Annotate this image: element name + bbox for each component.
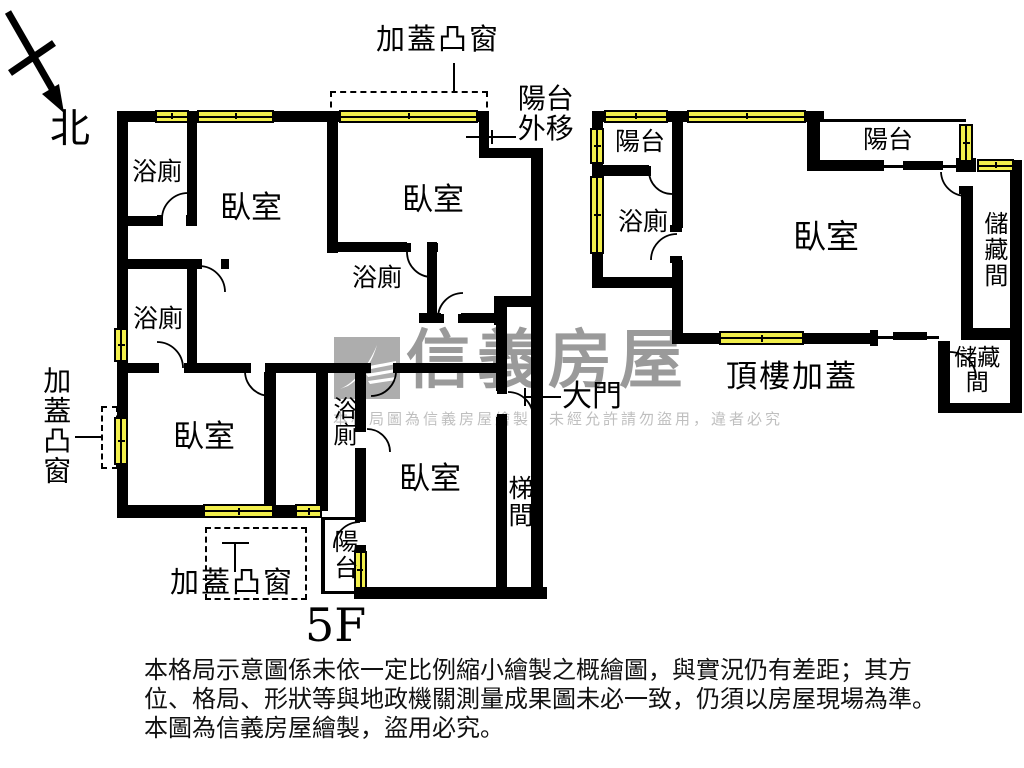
label-bay-window-top: 加蓋凸窗 — [376, 24, 500, 55]
wall — [187, 111, 197, 226]
wall — [264, 372, 276, 507]
wall — [337, 242, 407, 252]
wall — [355, 452, 366, 512]
label-bedroom-4: 臥室 — [399, 463, 461, 496]
window — [203, 504, 274, 518]
window — [604, 110, 668, 123]
window — [295, 504, 322, 518]
door-arc — [438, 293, 463, 318]
wall — [938, 403, 1018, 413]
wall — [396, 363, 498, 373]
window — [114, 328, 128, 362]
balcony-rail — [321, 517, 325, 594]
door-arc — [162, 193, 188, 219]
balcony-rail — [321, 591, 359, 594]
door-arc — [651, 234, 677, 260]
label-main-door: 大門 — [562, 381, 622, 413]
door-arc — [199, 266, 225, 292]
window — [114, 417, 128, 465]
wall — [531, 148, 543, 598]
wall — [354, 587, 547, 599]
label-bedroom-3: 臥室 — [173, 421, 235, 454]
label-bath-top: 浴廁 — [132, 158, 182, 185]
wall — [961, 328, 1018, 340]
wall — [672, 111, 683, 228]
wall — [427, 242, 437, 323]
label-roof-balcony-left: 陽台 — [615, 128, 665, 155]
window — [687, 110, 806, 123]
wall — [189, 363, 248, 373]
balcony-rail — [321, 517, 359, 520]
label-bedroom-1: 臥室 — [220, 192, 282, 225]
wall — [327, 111, 338, 253]
door-arc — [157, 342, 183, 368]
sliding-door-leaf — [903, 161, 943, 170]
label-roof-bath: 浴廁 — [618, 208, 668, 235]
north-arrow — [8, 12, 64, 113]
label-bay-window-left: 加蓋凸窗 — [40, 366, 70, 486]
label-roof-bedroom: 臥室 — [793, 219, 859, 255]
compass-north-label: 北 — [50, 108, 90, 151]
label-balcony-bottom: 陽台 — [330, 529, 356, 581]
wall — [461, 313, 498, 323]
window — [155, 110, 189, 123]
wall — [597, 165, 649, 176]
window — [339, 110, 478, 123]
label-bedroom-2: 臥室 — [402, 184, 464, 217]
wall — [597, 277, 677, 288]
sliding-door-leaf — [893, 332, 927, 340]
wall — [807, 160, 884, 171]
label-rooftop-addition: 頂樓加蓋 — [726, 361, 858, 394]
label-bath-left: 浴廁 — [133, 305, 183, 332]
window — [719, 331, 804, 345]
balcony-rail — [818, 119, 966, 122]
window — [590, 176, 604, 254]
label-bath-mid: 浴廁 — [352, 264, 402, 291]
window — [197, 110, 274, 123]
wall — [117, 216, 163, 226]
wall — [1010, 160, 1022, 413]
disclaimer-line-1: 本格局示意圖係未依一定比例縮小繪製之概繪圖，與實況仍有差距；其方 — [144, 656, 954, 685]
label-roof-storage-bottom: 儲藏間 — [952, 346, 1003, 396]
window — [590, 128, 604, 164]
door-arc — [367, 429, 390, 452]
wall — [117, 259, 198, 269]
window — [977, 159, 1014, 172]
label-bath-small: 浴廁 — [329, 396, 355, 448]
disclaimer-text: 本格局示意圖係未依一定比例縮小繪製之概繪圖，與實況仍有差距；其方 位、格局、形狀… — [144, 656, 954, 743]
label-roof-balcony-right: 陽台 — [863, 126, 913, 153]
wall — [961, 191, 973, 332]
watermark-brand: 信義房屋 — [406, 329, 690, 393]
wall — [316, 363, 328, 511]
disclaimer-line-3: 本圖為信義房屋繪製，盜用必究。 — [144, 714, 954, 743]
wall — [419, 313, 441, 323]
door-arc — [649, 171, 672, 194]
floorplan-canvas: 信義房屋 本格局圖為信義房屋繪製，未經允許請勿盜用，違者必究 — [0, 0, 1024, 768]
watermark-tagline: 本格局圖為信義房屋繪製，未經允許請勿盜用，違者必究 — [333, 408, 783, 429]
wall — [496, 307, 507, 391]
window — [959, 124, 973, 162]
door-jamb — [221, 259, 229, 269]
label-stairwell: 梯間 — [506, 475, 533, 529]
disclaimer-line-2: 位、格局、形狀等與地政機關測量成果圖未必一致，仍須以房屋現場為準。 — [144, 685, 954, 714]
wall — [870, 330, 878, 346]
wall — [117, 363, 158, 373]
wall — [672, 260, 683, 344]
label-roof-storage-right: 儲藏間 — [980, 211, 1006, 289]
label-bay-window-bottom: 加蓋凸窗 — [170, 567, 294, 598]
floor-label: 5F — [305, 601, 366, 651]
label-balcony-shift: 陽台外移 — [515, 84, 577, 144]
wall — [187, 259, 197, 372]
